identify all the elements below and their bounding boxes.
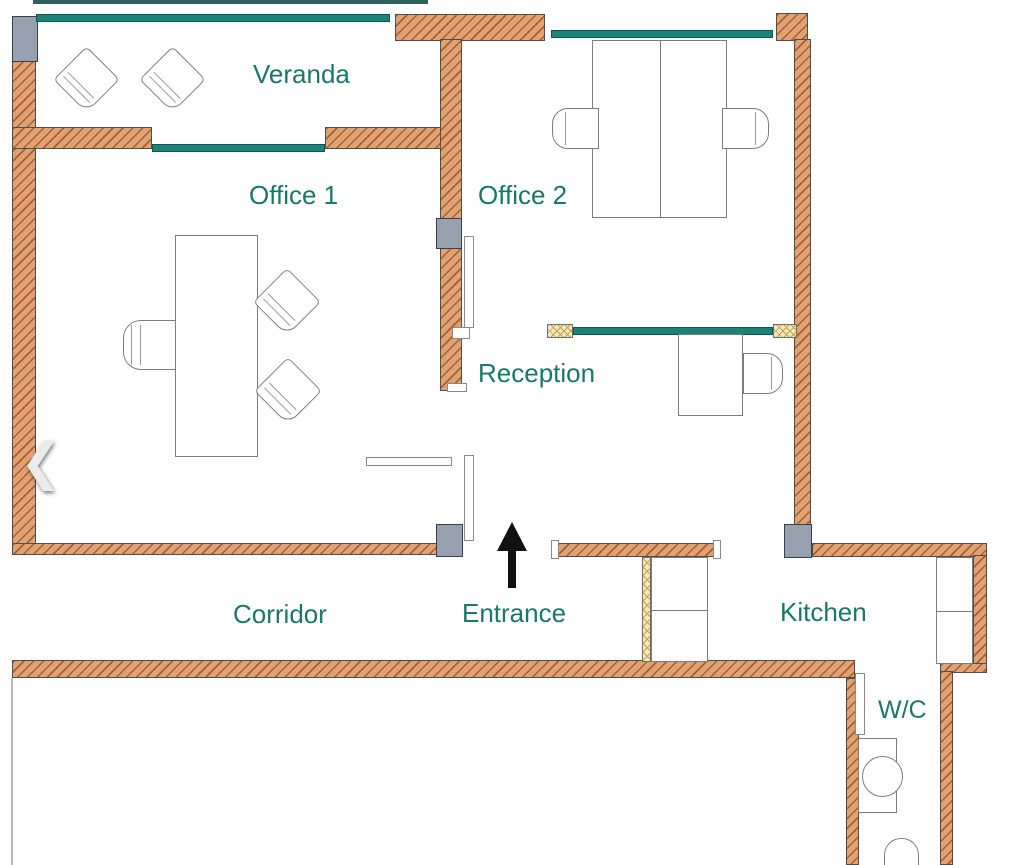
room-label-reception: Reception [478,358,595,389]
office1-chair-left [123,320,176,370]
veranda-outer-glass-line [33,0,428,4]
room-label-corridor: Corridor [233,599,327,630]
door-hinge-block [452,327,470,339]
wall-office1-bottom [12,543,438,555]
reception-desk [678,334,743,416]
partition-end-cap-right [773,324,797,338]
partition-entrance-kitchen [642,557,651,662]
door-leaf-reception [464,236,474,328]
window-veranda-top [36,14,390,22]
wc-toilet [884,838,919,865]
entrance-arrow-icon [497,522,527,588]
pier-office1-corner [436,524,463,557]
wall-veranda-bottom-left [12,127,152,149]
pier-office-divider [436,218,462,249]
office1-chair-right-2 [254,357,322,425]
wall-end-cap-entrance-right [713,540,721,559]
wall-right [794,39,811,526]
previous-image-button[interactable]: ❮ [20,434,64,490]
wc-sink-basin [862,756,903,797]
wall-corridor-bottom [12,660,855,678]
room-label-entrance: Entrance [462,598,566,629]
window-veranda-office1 [152,144,325,152]
reception-chair [743,353,783,394]
office1-chair-right-1 [253,268,321,336]
wall-end-cap-entrance-left [551,540,559,559]
veranda-chair-1 [53,46,119,112]
office2-chair-left [552,108,599,149]
wall-veranda-bottom-right [325,127,448,149]
door-leaf-wc [855,673,865,735]
room-label-veranda: Veranda [253,59,350,90]
kitchen-counter-left [651,557,708,662]
chevron-left-icon: ❮ [20,434,62,490]
wall-kitchen-right [973,555,987,665]
glass-partition-reception [573,327,773,335]
room-label-office2: Office 2 [478,180,567,211]
wall-top-middle [395,14,545,41]
door-leaf-office1-open [366,457,452,466]
window-office2-top [551,30,773,38]
room-label-wc: W/C [878,696,927,725]
floor-plan: { "rooms": { "veranda": { "label": "Vera… [0,0,1035,865]
door-leaf-office1 [464,455,474,541]
wall-entrance-top [557,543,715,557]
wall-kitchen-top [812,543,987,557]
pier-reception-corner [784,524,812,558]
wall-wc-right [940,671,953,865]
wall-end-cap-divider [447,383,467,392]
room-label-kitchen: Kitchen [780,597,867,628]
pier-top-left [12,16,38,62]
room-label-office1: Office 1 [249,180,338,211]
wall-left-edge-line [11,678,13,865]
veranda-chair-2 [139,46,205,112]
kitchen-counter-right [936,557,973,664]
wall-right-top-block [776,13,808,41]
office2-chair-right [722,108,769,149]
office1-desk [175,235,258,457]
office2-desk [592,40,727,218]
partition-end-cap-left [547,324,573,338]
